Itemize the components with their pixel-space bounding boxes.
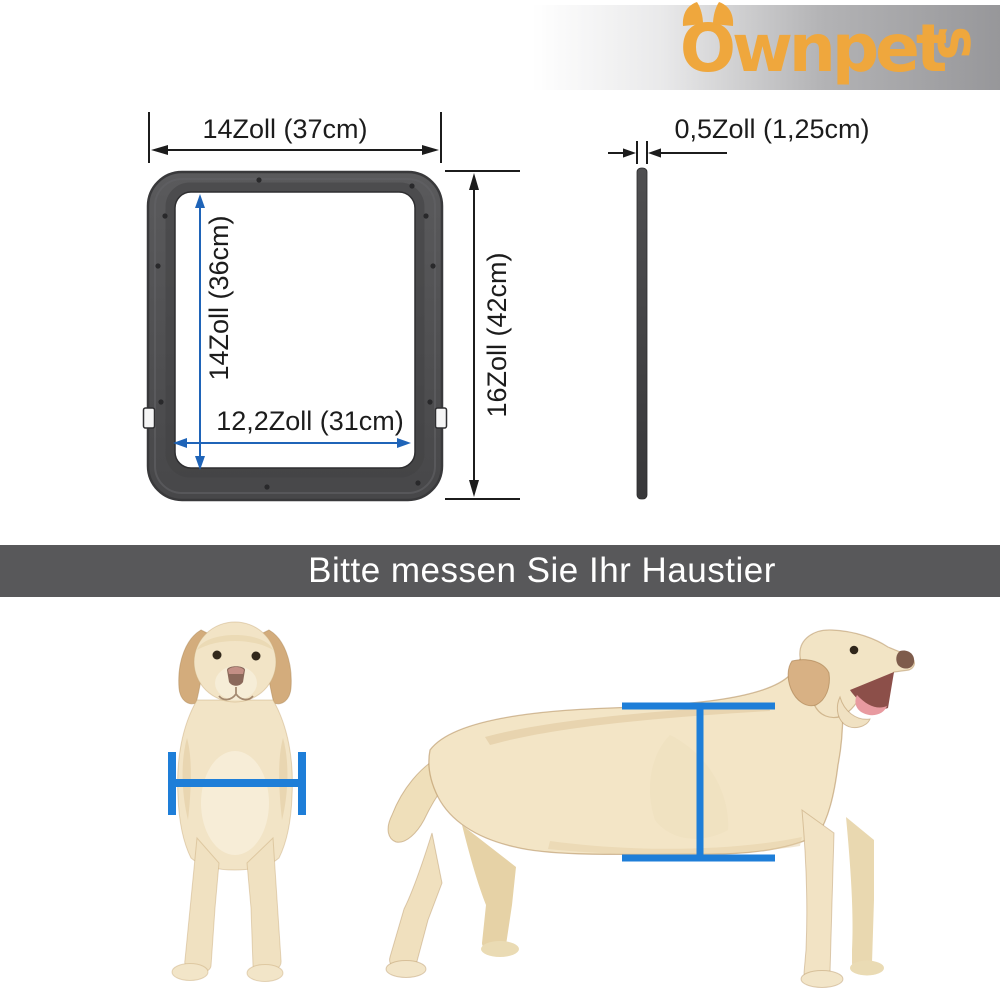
dim-label-outer-width: 14Zoll (37cm)	[202, 114, 367, 144]
dog-eye	[252, 652, 261, 661]
dog-eye	[850, 646, 859, 655]
front-dog-illustration	[135, 608, 335, 990]
pet-door-side-profile	[637, 168, 647, 499]
instruction-banner: Bitte messen Sie Ihr Haustier	[0, 545, 1000, 597]
dim-label-outer-height: 16Zoll (42cm)	[482, 252, 512, 417]
product-image: Ownpet s	[0, 0, 1000, 990]
side-dog-illustration	[370, 605, 990, 990]
dim-label-inner-height: 14Zoll (36cm)	[204, 215, 234, 380]
pet-door-front-view	[144, 172, 447, 500]
thickness-dimension	[608, 141, 727, 164]
dimension-diagram: 14Zoll (37cm) 16Zoll (42cm) 14Zoll (36cm…	[0, 0, 1000, 545]
dog-eye	[213, 651, 222, 660]
left-clip	[144, 408, 155, 428]
right-clip	[436, 408, 447, 428]
banner-text: Bitte messen Sie Ihr Haustier	[308, 551, 776, 591]
dim-label-thickness: 0,5Zoll (1,25cm)	[674, 114, 869, 144]
dim-label-inner-width: 12,2Zoll (31cm)	[216, 406, 404, 436]
